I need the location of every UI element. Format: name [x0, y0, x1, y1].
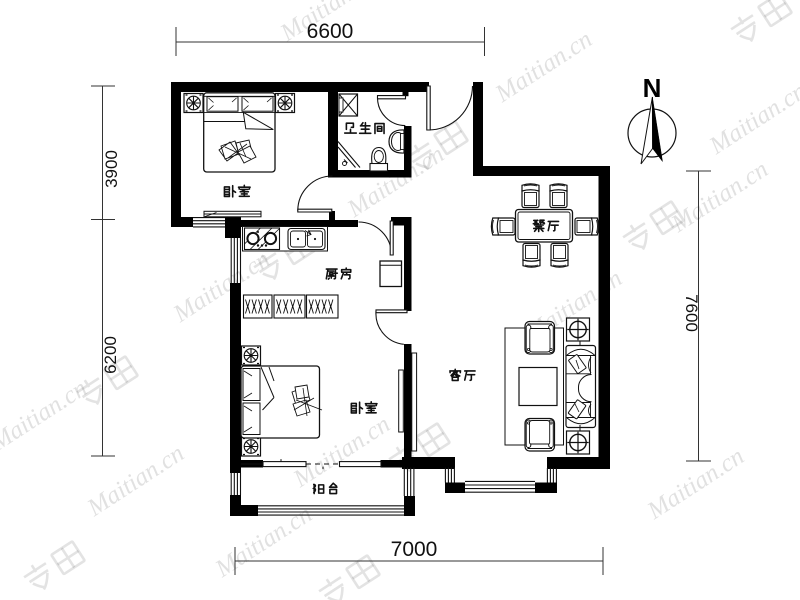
- svg-text:7600: 7600: [682, 294, 701, 332]
- svg-text:6200: 6200: [101, 336, 120, 374]
- svg-text:7000: 7000: [391, 538, 438, 561]
- svg-text:3900: 3900: [102, 150, 121, 188]
- svg-text:6600: 6600: [307, 20, 354, 43]
